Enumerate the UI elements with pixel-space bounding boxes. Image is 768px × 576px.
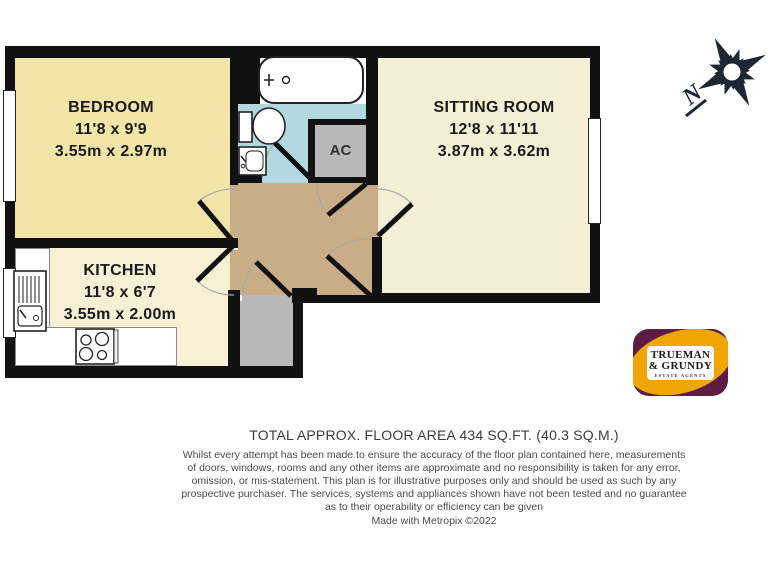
bedroom-metric: 3.55m x 2.97m [11, 141, 211, 163]
total-floor-area: TOTAL APPROX. FLOOR AREA 434 SQ.FT. (40.… [84, 427, 768, 443]
compass-long-points [692, 32, 768, 112]
wall-top [5, 46, 600, 58]
bedroom-imperial: 11'8 x 9'9 [11, 119, 211, 141]
compass-north-label: N [682, 79, 709, 112]
wall-sitting-left-lower [372, 237, 382, 303]
wall-ac-left [308, 119, 315, 183]
ac-closet-label: AC [315, 142, 366, 159]
logo-tagline: ESTATE AGENTS [647, 372, 714, 379]
hall-floor [238, 183, 378, 295]
wall-hall-bottom [292, 295, 382, 303]
compass-ray-ring [707, 47, 758, 98]
footer: TOTAL APPROX. FLOOR AREA 434 SQ.FT. (40.… [84, 427, 768, 528]
wall-vestibule-left [228, 290, 240, 378]
compass-north-underline [686, 100, 706, 116]
sitting-room-label: SITTING ROOM 12'8 x 11'11 3.87m x 3.62m [394, 97, 594, 163]
agency-logo: TRUEMAN & GRUNDY ESTATE AGENTS [633, 329, 728, 396]
sitting-room-imperial: 12'8 x 11'11 [394, 119, 594, 141]
wall-tub-end [238, 58, 260, 104]
sitting-room-name: SITTING ROOM [394, 97, 594, 119]
wall-bedroom-bathroom [230, 58, 238, 185]
hall-bedroom-doorway [230, 185, 238, 240]
kitchen-label: KITCHEN 11'8 x 6'7 3.55m x 2.00m [20, 260, 220, 326]
logo-line2: & GRUNDY [647, 361, 714, 372]
bedroom-label: BEDROOM 11'8 x 9'9 3.55m x 2.97m [11, 97, 211, 163]
kitchen-counter-bottom [15, 327, 177, 366]
entrance-vestibule [238, 301, 293, 366]
wall-bedroom-kitchen [5, 238, 238, 248]
compass-short-points [702, 42, 762, 102]
metropix-credit: Made with Metropix ©2022 [84, 514, 768, 528]
floorplan-page: BEDROOM 11'8 x 9'9 3.55m x 2.97m SITTING… [0, 0, 768, 576]
wall-sitting-bottom [370, 293, 600, 303]
bathroom-tub-area [256, 58, 366, 104]
kitchen-metric: 3.55m x 2.00m [20, 304, 220, 326]
sitting-room-metric: 3.87m x 3.62m [394, 141, 594, 163]
wall-ac-bottom [308, 177, 368, 183]
disclaimer-text: Whilst every attempt has been made to en… [84, 449, 768, 514]
wall-bathroom-bottom [238, 173, 262, 183]
kitchen-window [3, 268, 16, 338]
kitchen-name: KITCHEN [20, 260, 220, 282]
compass-rose: N [682, 30, 768, 126]
bedroom-name: BEDROOM [11, 97, 211, 119]
wall-bottom-left [5, 366, 303, 378]
kitchen-imperial: 11'8 x 6'7 [20, 282, 220, 304]
sitting-room-floor [378, 58, 590, 293]
wall-ac-top [308, 119, 368, 125]
hall-kitchen-doorway [230, 250, 238, 293]
logo-nameplate: TRUEMAN & GRUNDY ESTATE AGENTS [647, 346, 714, 380]
